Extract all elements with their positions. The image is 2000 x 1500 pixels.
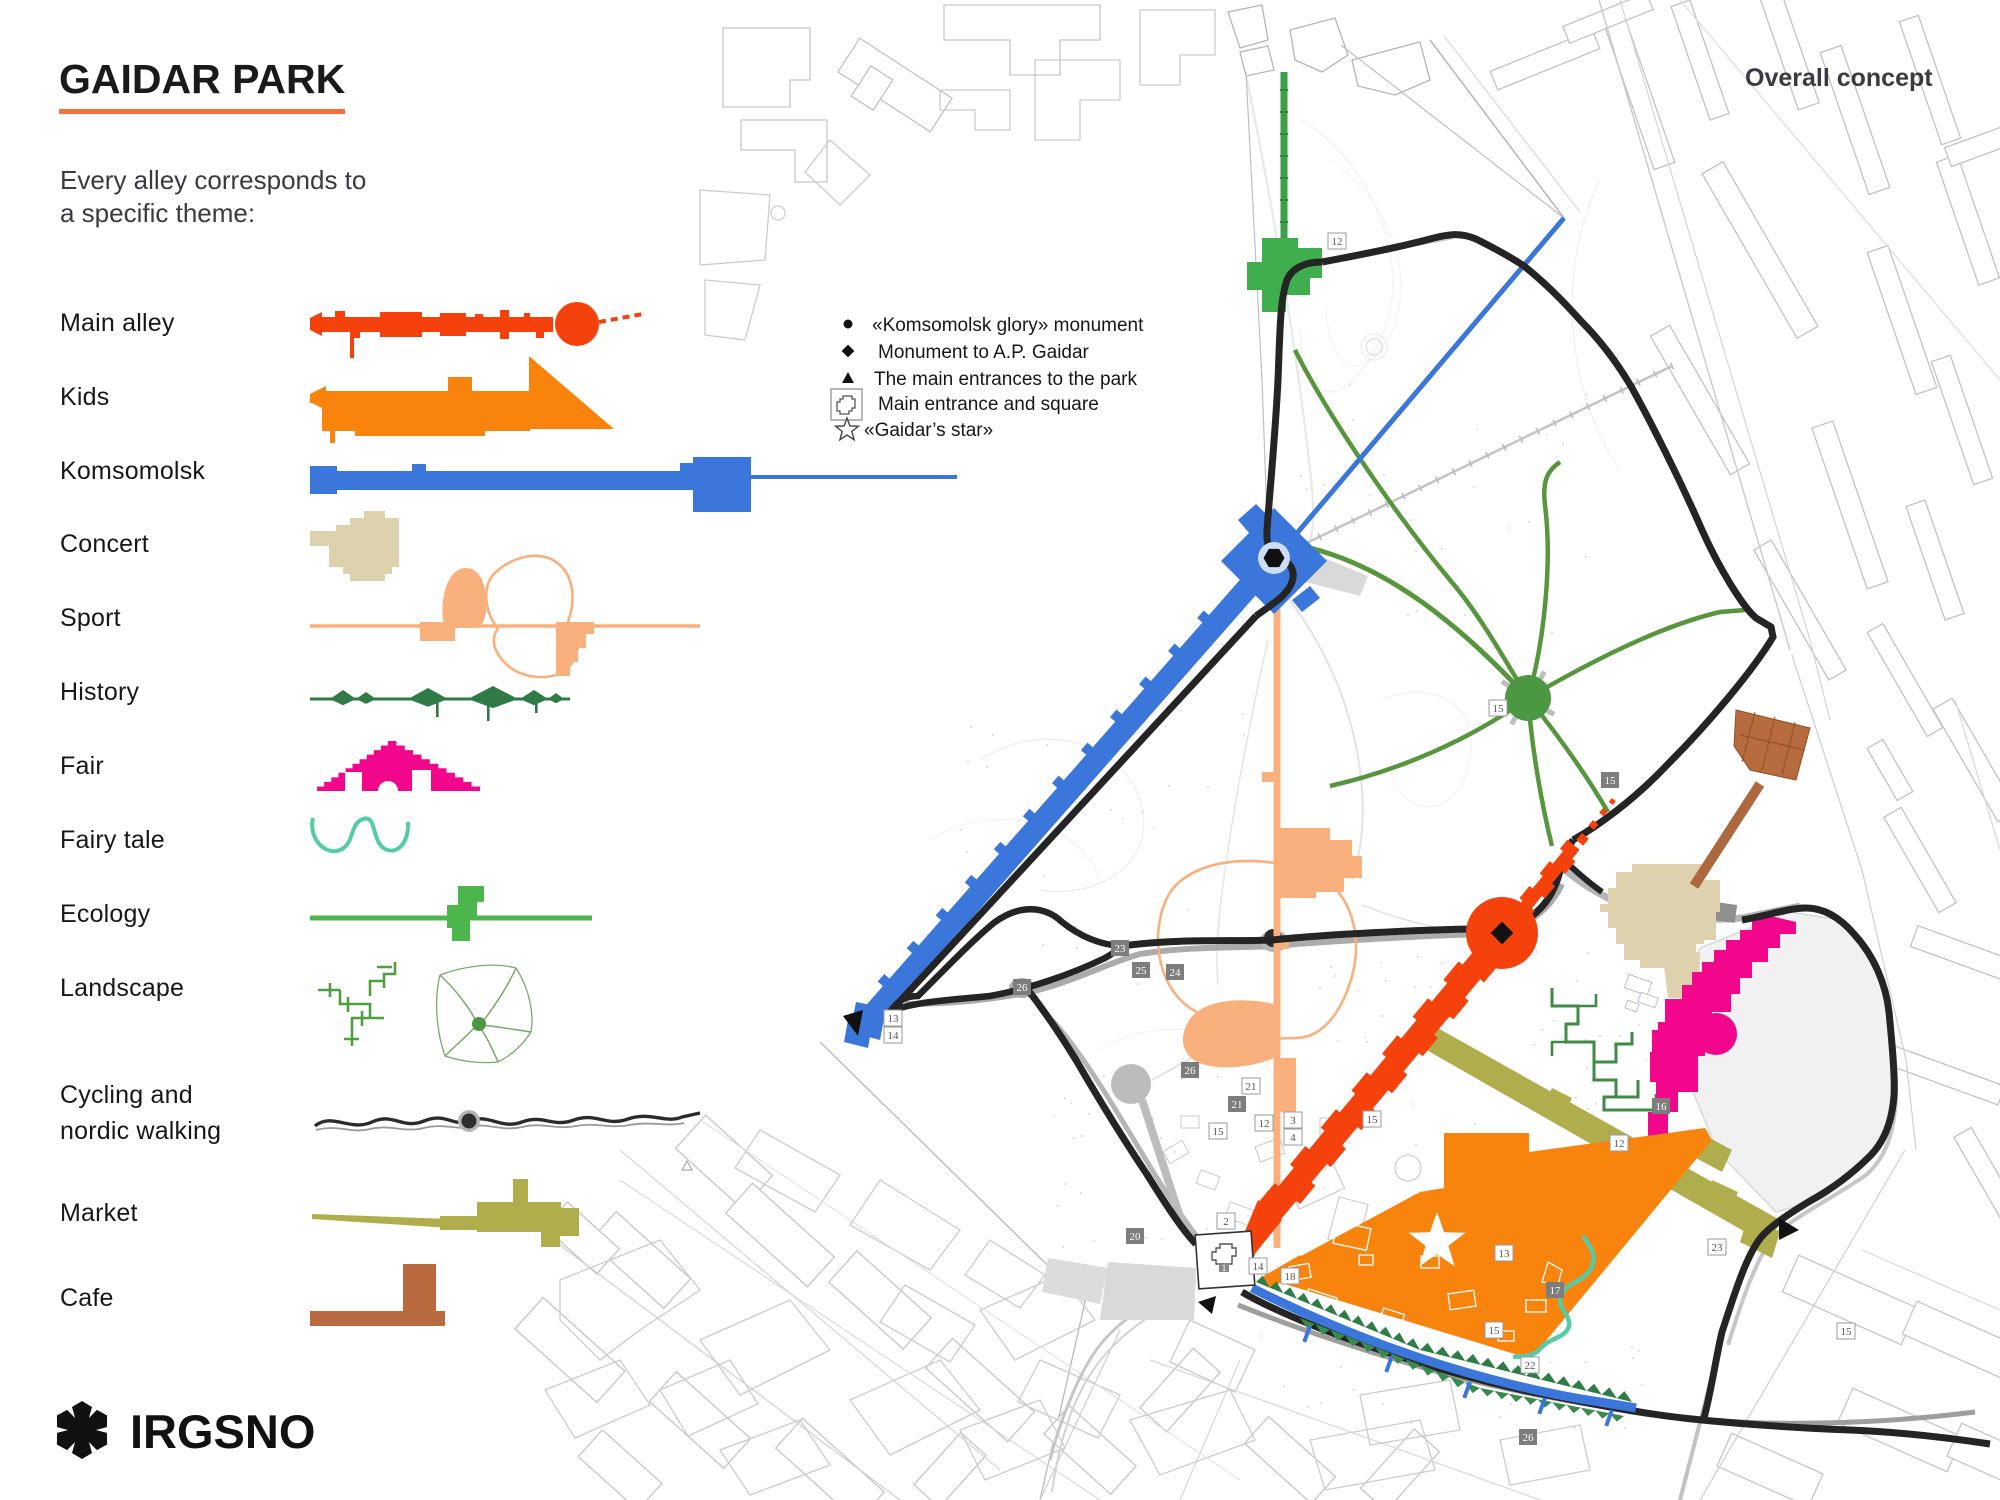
svg-text:14: 14	[888, 1030, 900, 1042]
svg-text:2: 2	[1223, 1216, 1229, 1228]
svg-text:23: 23	[1115, 943, 1127, 955]
svg-text:15: 15	[1841, 1326, 1853, 1338]
svg-text:3: 3	[1290, 1115, 1296, 1127]
svg-text:12: 12	[1614, 1138, 1625, 1150]
svg-text:18: 18	[1285, 1271, 1297, 1283]
svg-text:17: 17	[1550, 1285, 1562, 1297]
svg-text:25: 25	[1136, 965, 1148, 977]
svg-text:24: 24	[1170, 967, 1182, 979]
svg-text:15: 15	[1605, 775, 1617, 787]
svg-text:21: 21	[1232, 1099, 1243, 1111]
svg-text:15: 15	[1213, 1126, 1225, 1138]
svg-text:23: 23	[1712, 1242, 1724, 1254]
svg-text:1: 1	[1222, 1263, 1227, 1273]
svg-text:26: 26	[1523, 1432, 1535, 1444]
svg-text:20: 20	[1130, 1231, 1142, 1243]
svg-text:15: 15	[1493, 703, 1505, 715]
svg-text:16: 16	[1656, 1101, 1668, 1113]
svg-text:14: 14	[1253, 1261, 1265, 1273]
svg-text:22: 22	[1525, 1360, 1536, 1372]
svg-text:15: 15	[1367, 1114, 1379, 1126]
svg-text:12: 12	[1332, 236, 1343, 248]
svg-text:26: 26	[1017, 982, 1029, 994]
svg-text:26: 26	[1185, 1065, 1197, 1077]
svg-text:4: 4	[1290, 1132, 1296, 1144]
svg-text:12: 12	[1259, 1118, 1270, 1130]
svg-text:21: 21	[1246, 1081, 1257, 1093]
svg-text:13: 13	[1499, 1248, 1511, 1260]
svg-text:15: 15	[1489, 1325, 1501, 1337]
svg-text:13: 13	[888, 1013, 900, 1025]
